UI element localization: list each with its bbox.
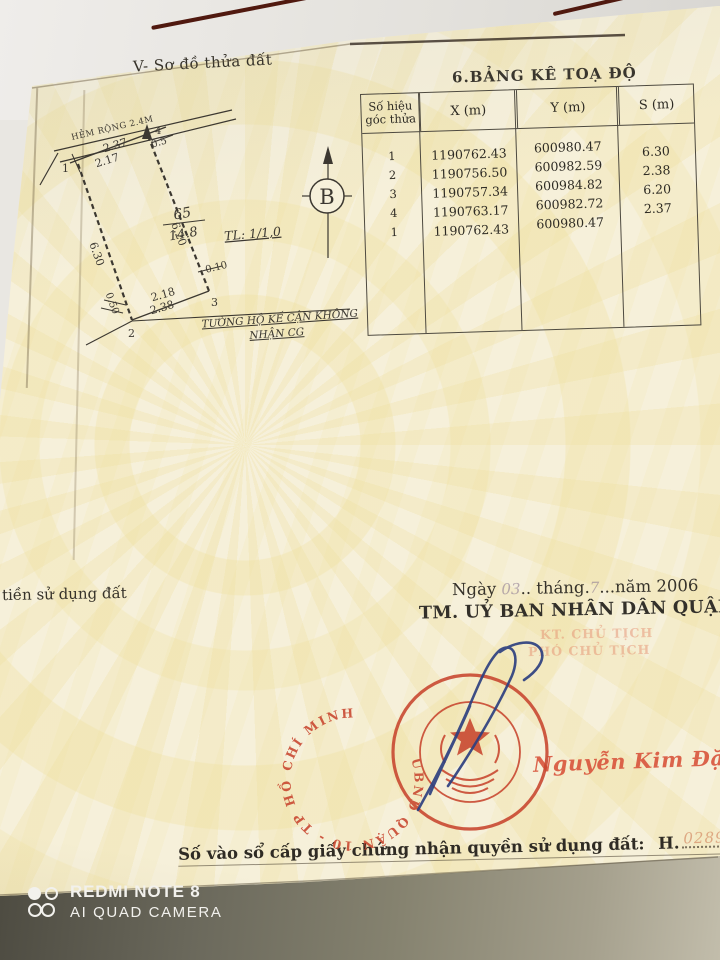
cell-s: 2.38 [619, 160, 694, 181]
cell-s: 6.20 [620, 179, 695, 200]
header-corner-id: Số hiệu góc thửa [361, 93, 421, 133]
handwritten-registry-number: 02893/01 [683, 828, 720, 848]
handwritten-day: 03 [501, 580, 520, 598]
cell-s: 2.37 [620, 198, 695, 219]
cell-corner: 2 [363, 165, 422, 186]
watermark-camera: AI QUAD CAMERA [70, 904, 222, 921]
photo-of-land-certificate: V- Sơ đồ thửa đất 6.BẢNG KÊ TOẠ ĐỘ Số hi… [0, 0, 720, 960]
cell-corner: 1 [363, 146, 422, 167]
cell-s [621, 217, 696, 238]
date-thang: .. tháng. [520, 578, 590, 598]
registry-dotted-field: 02893/01 [682, 844, 720, 848]
date-nam: ...năm 2006 [599, 576, 698, 597]
header-x: X (m) [420, 90, 518, 131]
cell-corner: 1 [365, 222, 424, 243]
cell-s: 6.30 [619, 141, 694, 162]
coords-table: Số hiệu góc thửa X (m) Y (m) S (m) 1 119… [360, 84, 701, 336]
cell-x: 1190762.43 [423, 219, 520, 241]
watermark-device: REDMI NOTE 8 [70, 882, 222, 902]
faded-signer-title-line1: KT. CHỦ TỊCH [540, 625, 653, 642]
cell-corner: 4 [364, 203, 423, 224]
left-text-fragment: tiền sử dụng đất [2, 584, 127, 604]
redmi-camera-icon [28, 887, 58, 917]
date-prefix: Ngày [452, 579, 502, 599]
cell-y: 600980.47 [519, 212, 622, 234]
header-y: Y (m) [516, 87, 620, 128]
camera-watermark: REDMI NOTE 8 AI QUAD CAMERA [28, 882, 222, 921]
faded-signer-title-line2: PHÓ CHỦ TỊCH [528, 642, 651, 659]
registry-prefix: H. [658, 833, 680, 852]
cell-corner: 3 [364, 184, 423, 205]
header-s: S (m) [619, 85, 694, 125]
